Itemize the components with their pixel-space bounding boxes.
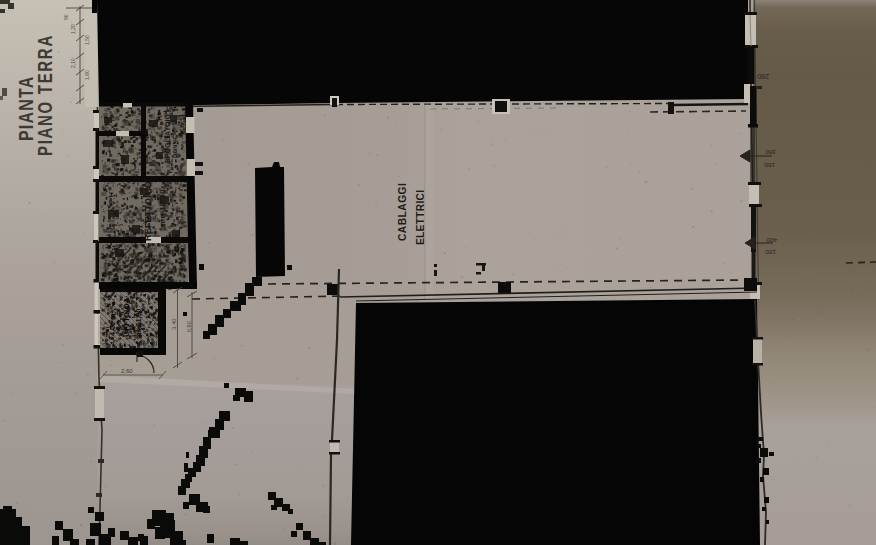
svg-text:3,40: 3,40 bbox=[171, 318, 177, 330]
svg-text:1,60: 1,60 bbox=[84, 70, 90, 80]
svg-text:150: 150 bbox=[765, 249, 776, 256]
svg-text:DONNE: DONNE bbox=[172, 136, 178, 158]
svg-text:380: 380 bbox=[765, 149, 776, 156]
svg-text:1,50: 1,50 bbox=[84, 35, 90, 45]
svg-text:260: 260 bbox=[757, 73, 769, 80]
svg-text:mq 16,50: mq 16,50 bbox=[158, 189, 167, 226]
svg-text:4,00 m: 4,00 m bbox=[108, 314, 117, 336]
svg-text:2,60: 2,60 bbox=[121, 368, 133, 374]
svg-text:REFETTORIO: REFETTORIO bbox=[143, 181, 153, 241]
svg-text:PIANO TERRA: PIANO TERRA bbox=[34, 34, 56, 156]
svg-text:1,20: 1,20 bbox=[70, 24, 76, 34]
svg-text:90: 90 bbox=[63, 14, 69, 20]
svg-text:UFFICIO: UFFICIO bbox=[122, 303, 131, 337]
svg-text:mq 11,90: mq 11,90 bbox=[134, 309, 143, 339]
svg-text:2,10: 2,10 bbox=[70, 58, 76, 68]
svg-text:CABLAGGI: CABLAGGI bbox=[397, 183, 408, 241]
svg-text:400: 400 bbox=[766, 237, 777, 244]
svg-text:150: 150 bbox=[764, 162, 775, 169]
svg-text:SPOGLIATOIO: SPOGLIATOIO bbox=[164, 113, 171, 163]
svg-text:0,90: 0,90 bbox=[186, 321, 192, 332]
